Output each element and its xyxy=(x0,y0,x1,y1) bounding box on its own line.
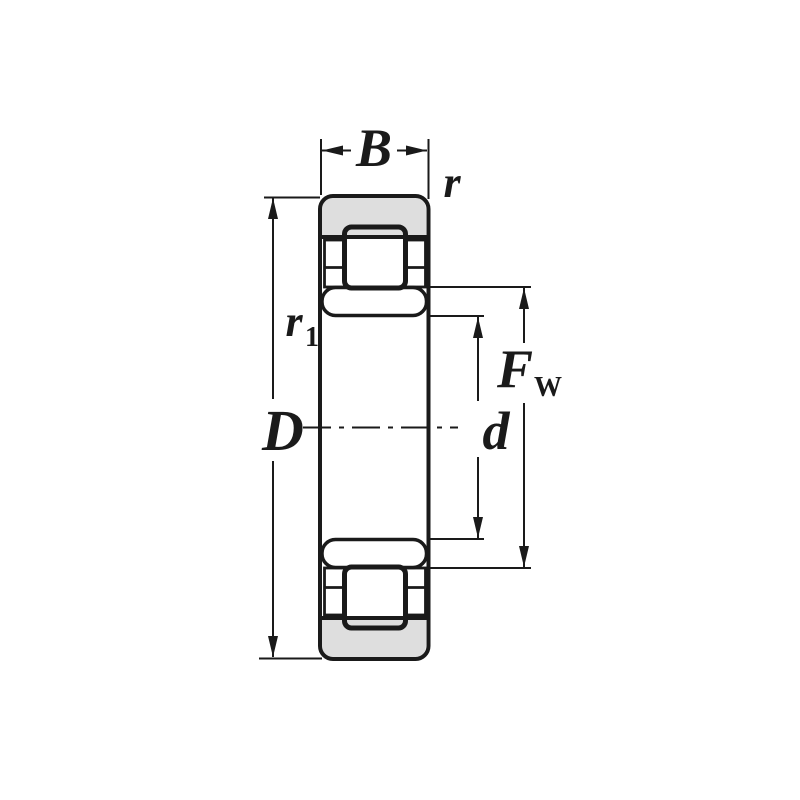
label-inner-chamfer-sub: 1 xyxy=(305,322,319,353)
label-inner-chamfer-r1: r 1 xyxy=(285,297,319,353)
arrowhead-right-icon xyxy=(406,146,427,156)
arrowhead-down-icon xyxy=(473,517,483,538)
arrowhead-down-icon xyxy=(519,546,529,567)
label-roller-pitch-sub: W xyxy=(534,372,562,403)
arrowhead-down-icon xyxy=(268,636,278,657)
arrowhead-up-icon xyxy=(519,288,529,309)
outer-ring-section xyxy=(322,198,426,238)
arrowhead-left-icon xyxy=(322,146,343,156)
label-inner-chamfer-base: r xyxy=(285,297,303,346)
label-outer-chamfer-r: r xyxy=(443,158,461,207)
label-width-B: B xyxy=(355,118,392,178)
arrowhead-up-icon xyxy=(473,317,483,338)
bearing-diagram-canvas: B r r 1 D F W d xyxy=(0,0,800,800)
dim-width-B: B xyxy=(321,118,429,199)
bearing-dimension-diagram: B r r 1 D F W d xyxy=(0,0,800,800)
label-bore-diameter-d: d xyxy=(483,401,511,461)
label-roller-pitch-base: F xyxy=(496,339,533,399)
label-outer-diameter-D: D xyxy=(261,398,304,463)
arrowhead-up-icon xyxy=(268,198,278,219)
